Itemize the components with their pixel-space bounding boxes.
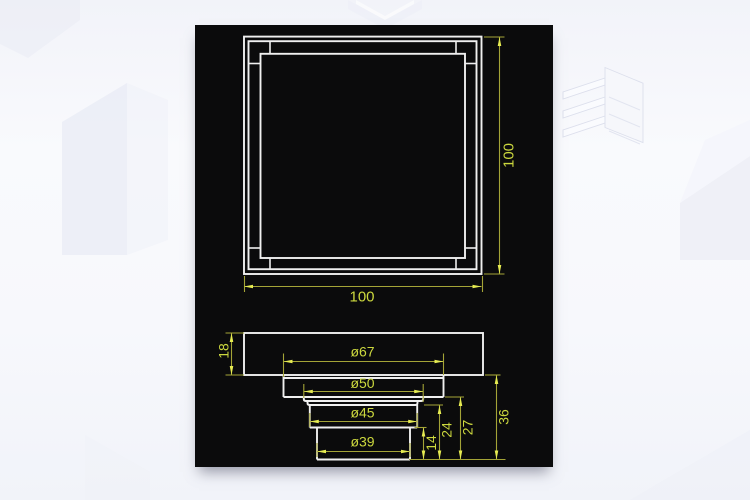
svg-text:18: 18 <box>216 343 232 359</box>
svg-text:ø67: ø67 <box>350 344 374 360</box>
svg-text:24: 24 <box>439 422 455 438</box>
svg-text:100: 100 <box>501 143 518 168</box>
svg-text:ø50: ø50 <box>350 375 374 391</box>
svg-text:ø45: ø45 <box>350 405 374 421</box>
svg-text:100: 100 <box>349 289 374 306</box>
svg-text:36: 36 <box>496 409 512 425</box>
svg-text:ø39: ø39 <box>350 434 374 450</box>
svg-text:14: 14 <box>423 435 439 451</box>
svg-text:27: 27 <box>460 420 476 436</box>
